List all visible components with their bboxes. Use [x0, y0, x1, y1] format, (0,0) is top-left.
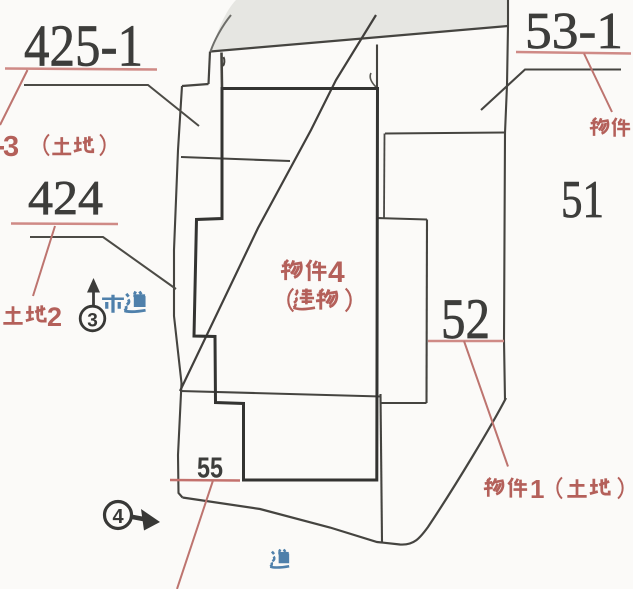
svg-text:425-1: 425-1	[24, 13, 143, 79]
svg-text:424: 424	[28, 172, 103, 225]
svg-text:2: 2	[47, 302, 62, 332]
svg-text:3: 3	[3, 131, 19, 163]
svg-text:4: 4	[112, 506, 124, 528]
svg-text:55: 55	[197, 453, 223, 485]
svg-text:53-1: 53-1	[525, 3, 623, 60]
svg-text:51: 51	[561, 171, 604, 229]
svg-text:1: 1	[530, 474, 544, 504]
svg-text:3: 3	[87, 311, 98, 332]
svg-text:52: 52	[441, 288, 490, 351]
svg-text:4: 4	[328, 256, 345, 289]
